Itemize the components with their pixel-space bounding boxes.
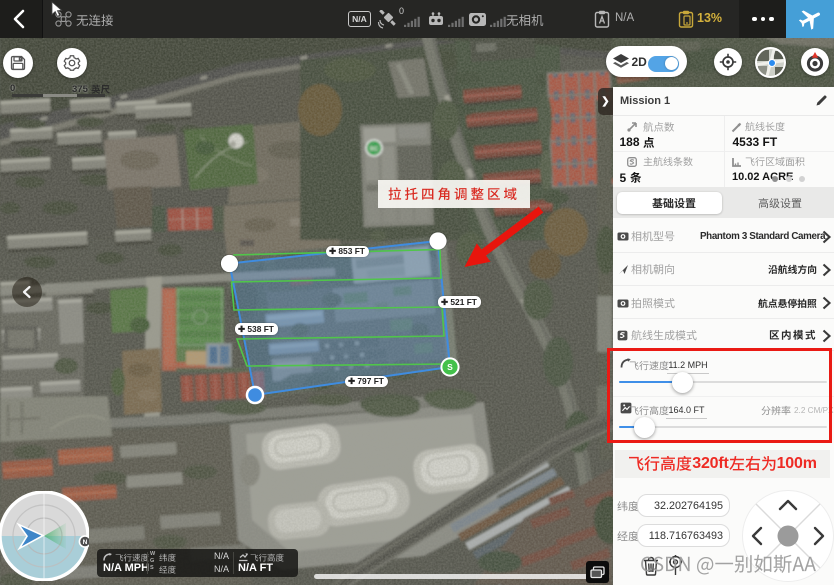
svg-text:S: S [447, 362, 453, 372]
svg-text:N: N [83, 539, 88, 546]
